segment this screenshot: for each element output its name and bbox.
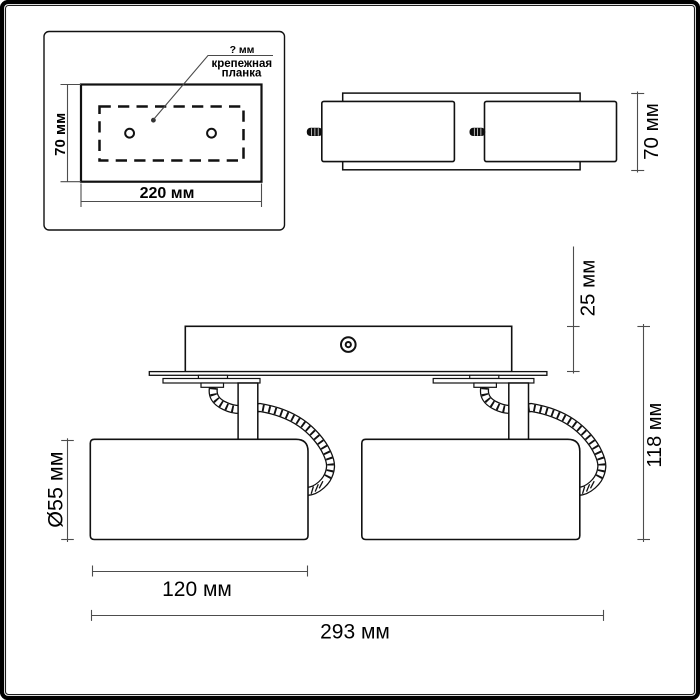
svg-text:70 мм: 70 мм [52, 113, 69, 156]
svg-text:планка: планка [222, 67, 262, 79]
svg-text:25 мм: 25 мм [577, 260, 600, 317]
svg-text:118 мм: 118 мм [644, 403, 666, 468]
svg-text:120 мм: 120 мм [162, 578, 232, 601]
svg-text:? мм: ? мм [230, 44, 255, 56]
svg-text:70 мм: 70 мм [640, 103, 663, 160]
svg-text:220 мм: 220 мм [140, 185, 195, 202]
svg-text:Ø55 мм: Ø55 мм [44, 452, 68, 528]
svg-text:293 мм: 293 мм [320, 620, 390, 643]
